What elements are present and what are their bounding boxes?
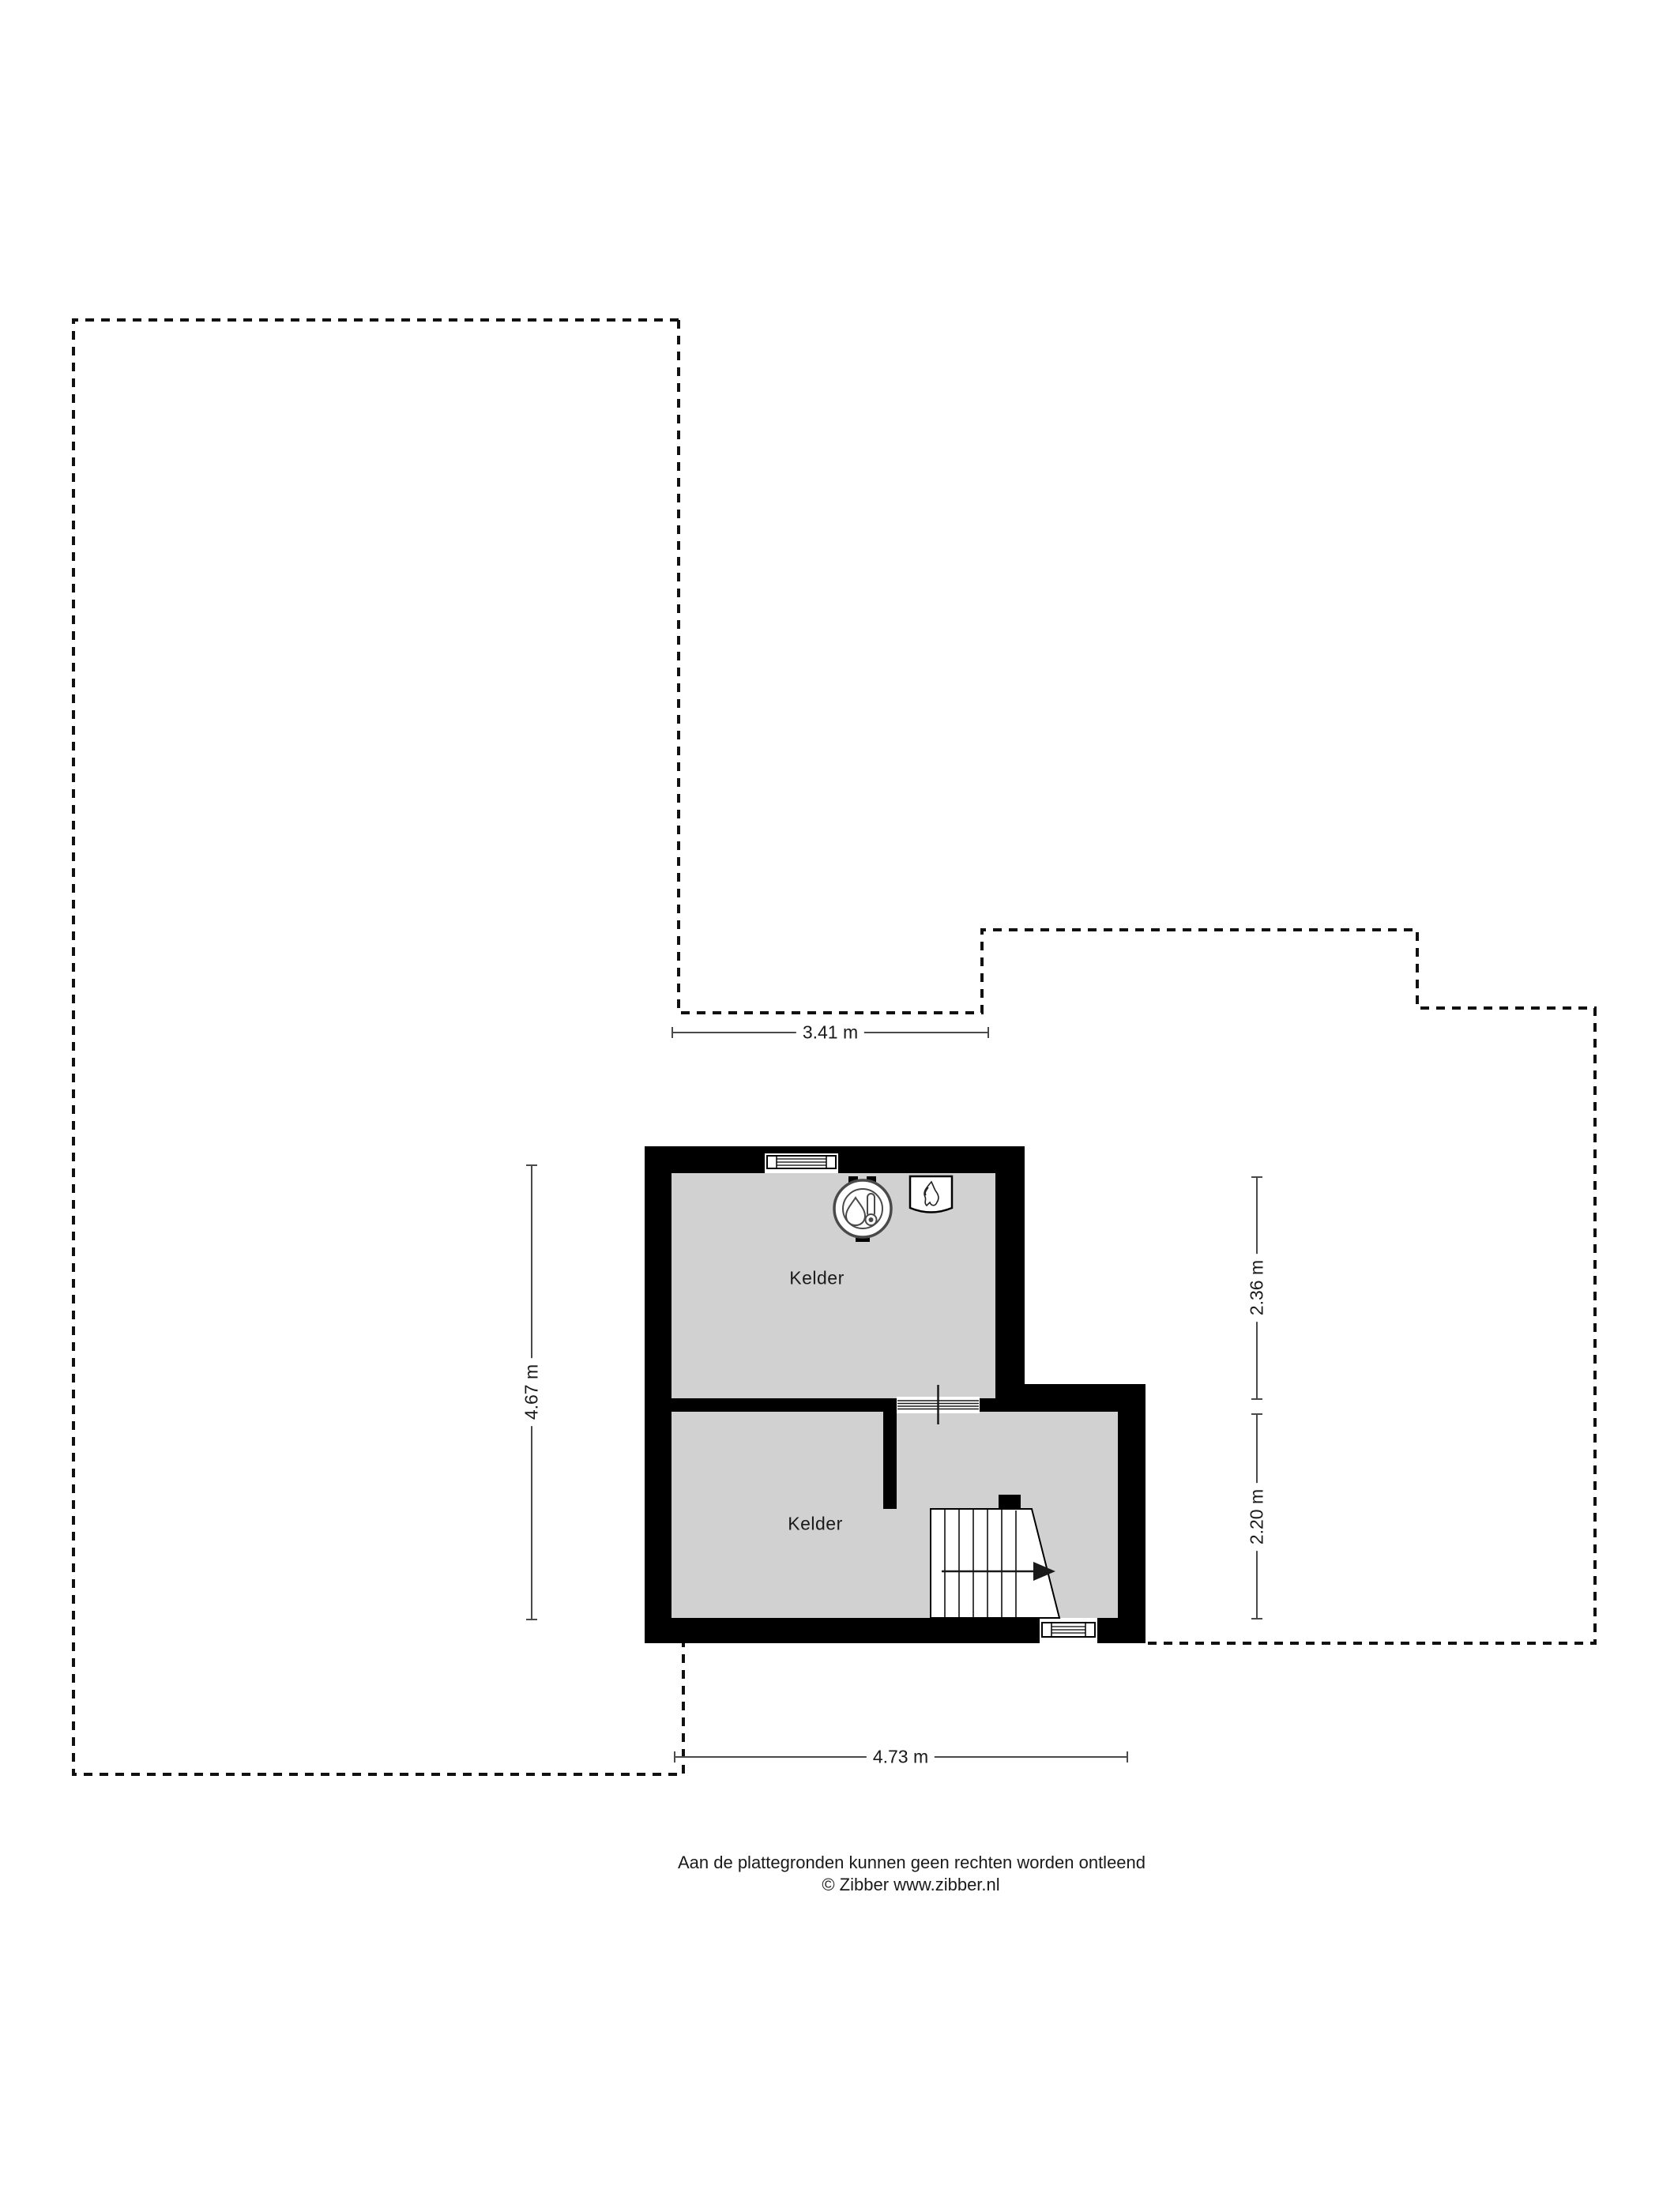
- stair-newel-post: [999, 1495, 1021, 1509]
- dimension-label-bottom: 4.73 m: [867, 1746, 935, 1769]
- room-label-kelder-lower: Kelder: [788, 1514, 842, 1535]
- footer-copyright: © Zibber www.zibber.nl: [822, 1875, 999, 1895]
- room-label-kelder-upper: Kelder: [789, 1268, 844, 1289]
- footprint-outline-left: [73, 320, 683, 1774]
- dimension-label-top: 3.41 m: [796, 1021, 864, 1044]
- dimension-label-left: 4.67 m: [521, 1358, 544, 1426]
- dimension-label-right-lower: 2.20 m: [1246, 1483, 1269, 1551]
- heater-icon: [910, 1176, 952, 1213]
- dimension-label-right-upper: 2.36 m: [1246, 1254, 1269, 1322]
- window-top-icon: [765, 1153, 838, 1173]
- floorplan-page: Kelder Kelder 3.41 m 4.73 m 4.67 m 2.36 …: [0, 0, 1659, 2212]
- interior-wall-stub: [883, 1412, 897, 1509]
- divider-wall-block: [980, 1398, 995, 1412]
- window-bottom-icon: [1040, 1618, 1097, 1643]
- footer-disclaimer: Aan de plattegronden kunnen geen rechten…: [678, 1853, 1145, 1873]
- divider-wall: [645, 1398, 897, 1412]
